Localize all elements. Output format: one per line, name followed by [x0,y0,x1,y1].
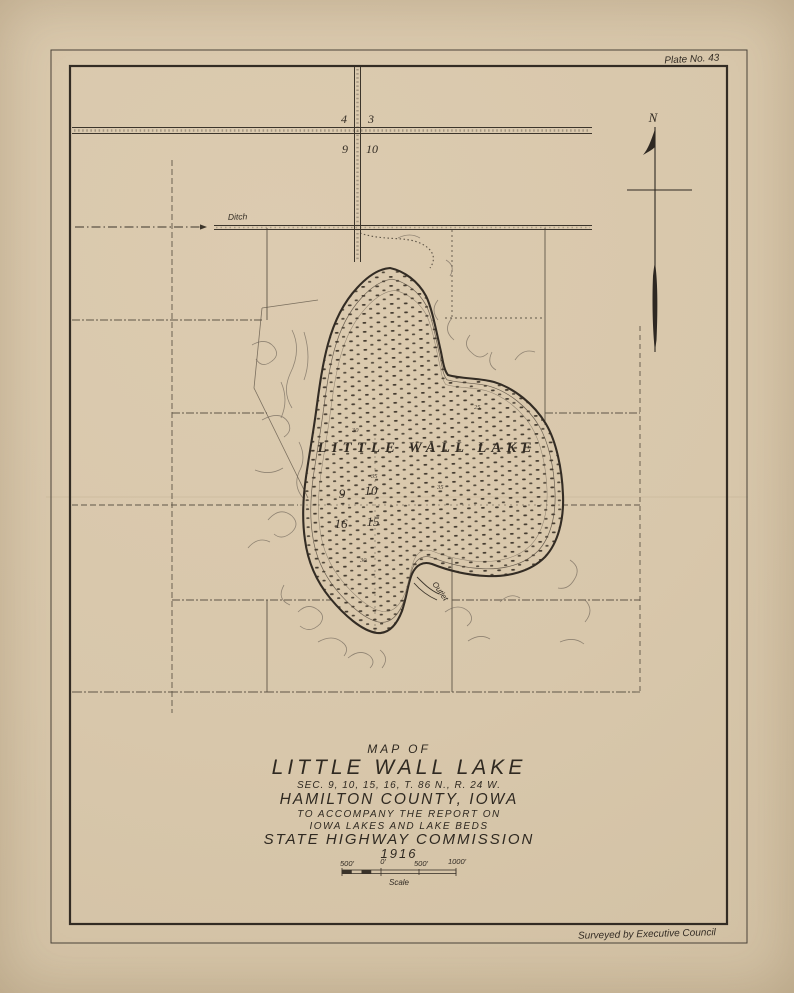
section-number: 10 [366,142,378,156]
east-west-road [72,128,592,134]
scale-tick-label: 1000' [448,857,467,866]
section-number: 9 [342,142,348,156]
north-arrow: N [627,110,692,352]
section-number: 4 [341,112,347,126]
ditch-label: Ditch [228,211,248,222]
section-number: 16 [335,516,349,531]
depth-label: 35 [436,484,444,491]
scale-caption: Scale [389,878,410,887]
section-number: 9 [339,486,346,501]
scale-tick-label: 0' [380,857,386,866]
credit-label: Surveyed by Executive Council [578,927,717,942]
section-number: 15 [367,514,381,529]
depth-label: 35 [370,473,378,480]
scale-tick-label: 500' [414,859,429,868]
lake-name-label: LITTLE WALL LAKE [317,440,537,456]
title-year: 1916 [381,846,418,861]
north-arrow-flag [643,129,655,155]
north-south-road [355,67,361,262]
title-block: MAP OF LITTLE WALL LAKE SEC. 9, 10, 15, … [264,742,535,861]
title-map-of: MAP OF [367,742,431,756]
lake: LITTLE WALL LAKE 30 35 25 35 30 [303,268,563,633]
map-canvas: Plate No. 43 [0,0,794,993]
north-label: N [648,110,659,125]
title-sections: SEC. 9, 10, 15, 16, T. 86 N., R. 24 W. [297,780,501,791]
depth-label: 30 [351,427,359,434]
ditch-line [75,224,592,229]
map-sheet: Plate No. 43 [0,0,794,993]
inlet-channel [360,233,433,268]
title-accompany: TO ACCOMPANY THE REPORT ON [297,809,500,820]
title-county: HAMILTON COUNTY, IOWA [280,791,519,808]
outlet-label: Outlet [430,580,450,603]
scale-tick-label: 500' [340,859,355,868]
section-number: 10 [365,483,379,498]
title-lake: LITTLE WALL LAKE [272,756,527,779]
north-arrow-needle [653,263,658,351]
section-number: 3 [367,112,374,126]
depth-label: 25 [474,404,481,411]
depth-label: 30 [359,557,367,564]
plate-number: Plate No. 43 [664,53,720,67]
scale-bar: 500' 0' 500' 1000' Scale [340,857,467,887]
